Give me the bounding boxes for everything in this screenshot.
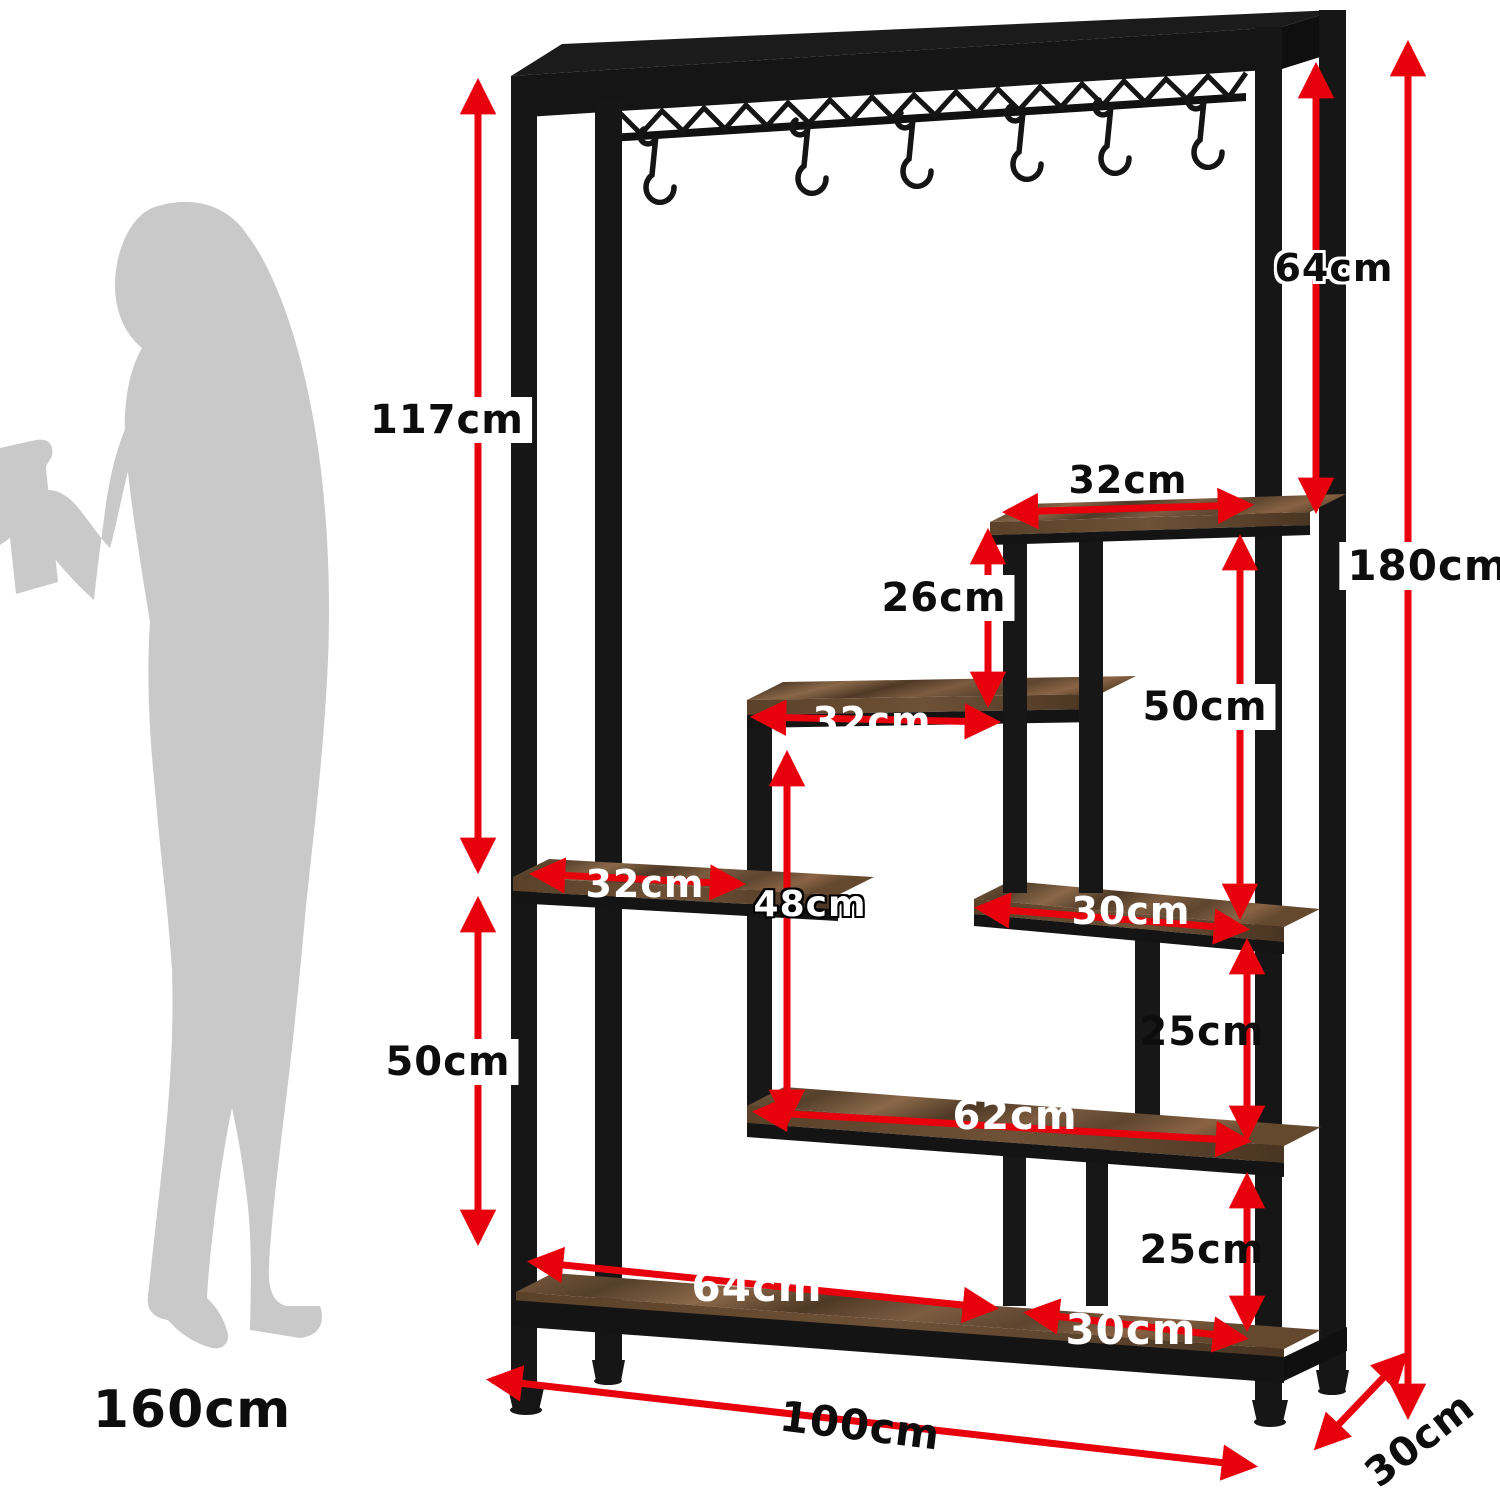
s-hook-icon: [1007, 106, 1041, 179]
dim-label-117cm: 117cm: [362, 397, 532, 443]
dim-label-64cm-top: 64cm: [1274, 249, 1393, 287]
dim-label-26cm: 26cm: [873, 575, 1014, 621]
dim-label-30cm-shelf: 30cm: [1071, 892, 1190, 930]
dim-label-25cm-lower: 25cm: [1139, 1230, 1264, 1270]
post-front-left: [511, 76, 537, 1388]
dim-label-32cm-left: 32cm: [585, 865, 704, 903]
post-back-left: [595, 100, 622, 1362]
support-long-shelf-left: [1003, 1146, 1026, 1306]
dim-label-30cm-bottom: 30cm: [1065, 1309, 1196, 1351]
dim-label-64cm-bottom: 64cm: [691, 1266, 822, 1308]
support-top-shelf-right: [1079, 535, 1103, 893]
dim-label-50cm-right: 50cm: [1134, 684, 1275, 730]
s-hook-icon: [897, 113, 931, 186]
dim-label-32cm-top: 32cm: [1068, 461, 1187, 499]
silhouette-body: [115, 202, 329, 1349]
dim-label-180cm: 180cm: [1339, 542, 1500, 590]
top-frame: [511, 10, 1336, 142]
furniture-dimension-diagram: 117cm 50cm 64cm 180cm 32cm 26cm 50cm 32c…: [0, 0, 1500, 1500]
support-long-shelf-right: [1086, 1146, 1108, 1306]
s-hook-icon: [1188, 94, 1222, 167]
s-hook-icon: [640, 129, 674, 202]
silhouette-phone: [2, 450, 58, 594]
dim-label-32cm-middle: 32cm: [812, 702, 931, 740]
post-back-right: [1319, 10, 1346, 1370]
dim-label-25cm-upper: 25cm: [1139, 1012, 1264, 1052]
s-hook-icon: [792, 120, 826, 193]
shelf-bottom: [511, 1273, 1347, 1383]
s-hook-icon: [1095, 100, 1129, 173]
person-silhouette: [0, 202, 329, 1349]
dim-label-62cm: 62cm: [952, 1096, 1077, 1136]
dim-label-48cm: 48cm: [754, 887, 867, 923]
dim-label-50cm-left: 50cm: [377, 1039, 518, 1085]
person-height-label: 160cm: [93, 1384, 292, 1436]
